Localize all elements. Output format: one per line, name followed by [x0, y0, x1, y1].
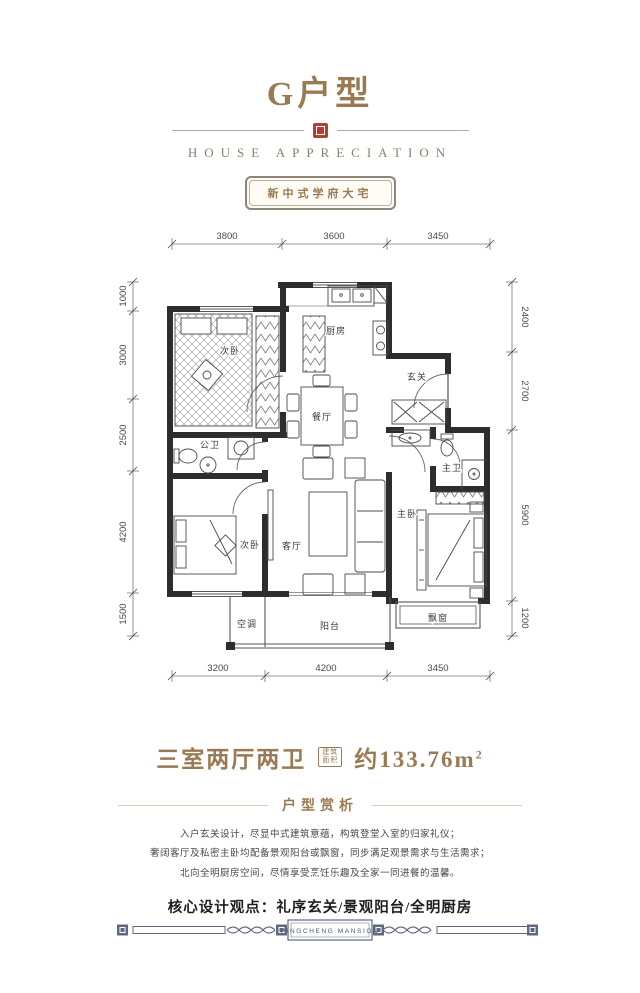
dim-bottom-1: 3200	[207, 663, 228, 674]
dim-top-1: 3800	[216, 231, 237, 242]
dim-top-3: 3450	[427, 231, 448, 242]
area-number: 约133.76m	[354, 747, 475, 772]
title-divider	[0, 123, 640, 138]
area-badge: 建筑 面积	[318, 747, 342, 766]
area-badge-line1: 建筑	[322, 749, 338, 757]
brand-name: PINGCHENG MANSION	[281, 928, 380, 935]
heading-line-left	[118, 805, 268, 806]
dim-left-3: 2500	[118, 424, 129, 445]
room-label-kitchen: 厨房	[326, 325, 346, 336]
dim-right-2: 2700	[519, 380, 530, 401]
dim-right-1: 2400	[519, 306, 530, 327]
page-title: G户型	[0, 76, 640, 113]
analysis-line-1: 入户玄关设计，尽显中式建筑意蕴，构筑登堂入室的归家礼仪；	[0, 826, 640, 845]
footer-svg: PINGCHENG MANSION	[0, 912, 640, 948]
dim-left-4: 4200	[118, 521, 129, 542]
badge-wrap: 新中式学府大宅	[0, 176, 640, 210]
footer-ornament: PINGCHENG MANSION	[0, 912, 640, 953]
room-label-bedroom-master: 主卧	[397, 508, 417, 519]
subtitle: HOUSE APPRECIATION	[0, 145, 640, 161]
analysis-heading-row: 户型赏析	[0, 795, 640, 815]
floorplan-svg: 次卧 厨房 玄关 餐厅 公卫 次卧 客厅 主卧 主卫 空调 阳台 飘窗	[0, 224, 640, 704]
header: G户型 HOUSE APPRECIATION 新中式学府大宅	[0, 76, 640, 210]
room-label-master-bath: 主卫	[442, 462, 462, 473]
dim-left-2: 3000	[118, 344, 129, 365]
tagline-badge: 新中式学府大宅	[245, 176, 396, 210]
layout-label: 三室两厅两卫	[156, 740, 306, 774]
furniture-bedroom-top	[175, 314, 279, 428]
dim-bottom-2: 4200	[315, 663, 336, 674]
tagline-badge-label: 新中式学府大宅	[249, 180, 392, 206]
analysis-line-2: 奢阔客厅及私密主卧均配备景观阳台或飘窗，同步满足观景需求与生活需求；	[0, 845, 640, 864]
area-badge-line2: 面积	[322, 757, 338, 765]
area-sup: 2	[476, 747, 484, 761]
ornament-square-icon	[527, 925, 538, 936]
balcony-caps	[226, 642, 394, 650]
analysis-heading: 户型赏析	[282, 795, 358, 815]
furniture-bedroom-second	[174, 516, 236, 574]
analysis-section: 户型赏析 入户玄关设计，尽显中式建筑意蕴，构筑登堂入室的归家礼仪； 奢阔客厅及私…	[0, 795, 640, 917]
furniture-bedroom-master	[417, 492, 486, 598]
room-label-ac: 空调	[237, 618, 257, 629]
analysis-line-3: 北向全明厨房空间，尽情享受烹饪乐趣及全家一同进餐的温馨。	[0, 865, 640, 884]
room-label-living: 客厅	[282, 540, 302, 551]
ornament-square-icon	[117, 925, 128, 936]
divider-line-left	[172, 130, 304, 131]
room-label-bedroom-top: 次卧	[220, 345, 240, 356]
floorplan: 次卧 厨房 玄关 餐厅 公卫 次卧 客厅 主卧 主卫 空调 阳台 飘窗	[0, 224, 640, 704]
furniture-entry	[392, 400, 446, 424]
dim-left-1: 1000	[118, 285, 129, 306]
seal-icon	[313, 123, 328, 138]
dim-right-4: 1200	[519, 607, 530, 628]
dim-top-2: 3600	[323, 231, 344, 242]
divider-line-right	[337, 130, 469, 131]
room-label-bedroom-second: 次卧	[240, 539, 260, 550]
furniture-living	[268, 458, 385, 595]
area-value: 约133.76m2	[354, 740, 483, 774]
room-label-balcony: 阳台	[320, 620, 340, 631]
room-label-baywindow: 飘窗	[428, 612, 448, 623]
analysis-description: 入户玄关设计，尽显中式建筑意蕴，构筑登堂入室的归家礼仪； 奢阔客厅及私密主卧均配…	[0, 826, 640, 884]
dim-bottom-3: 3450	[427, 663, 448, 674]
furniture-master-bath	[392, 430, 487, 489]
summary-row: 三室两厅两卫 建筑 面积 约133.76m2	[0, 740, 640, 774]
dim-left-5: 1500	[118, 603, 129, 624]
dim-right-3: 5900	[519, 504, 530, 525]
room-label-guest-bath: 公卫	[200, 440, 220, 450]
floorplan-page: G户型 HOUSE APPRECIATION 新中式学府大宅	[0, 0, 640, 993]
room-label-dining: 餐厅	[312, 411, 332, 422]
heading-line-right	[372, 805, 522, 806]
room-label-entry: 玄关	[407, 371, 427, 382]
